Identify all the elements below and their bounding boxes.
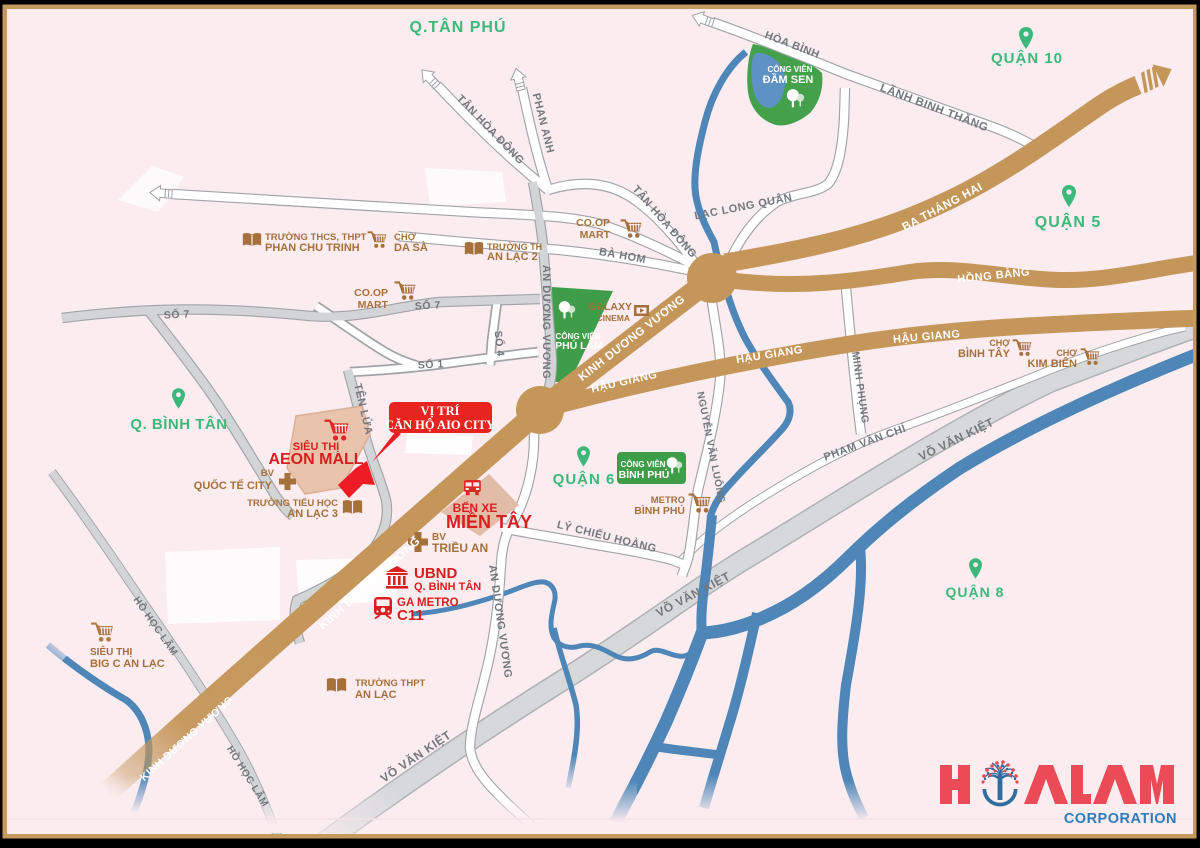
svg-text:TRIỀU AN: TRIỀU AN (432, 540, 488, 555)
svg-text:AN DƯƠNG VƯƠNG: AN DƯƠNG VƯƠNG (540, 265, 552, 379)
svg-text:CÔNG VIÊN: CÔNG VIÊN (621, 460, 666, 469)
svg-text:SỐ 7: SỐ 7 (163, 306, 190, 321)
svg-text:QUẬN 6: QUẬN 6 (553, 470, 616, 488)
svg-text:Q. BÌNH TÂN: Q. BÌNH TÂN (130, 415, 227, 433)
svg-text:CHỢ: CHỢ (1056, 348, 1077, 358)
svg-text:CORPORATION: CORPORATION (1064, 811, 1177, 827)
svg-text:GALAXY: GALAXY (588, 301, 632, 313)
svg-text:AEON MALL: AEON MALL (268, 451, 363, 468)
svg-text:CHỢ: CHỢ (989, 338, 1010, 348)
svg-text:QUỐC TẾ CITY: QUỐC TẾ CITY (194, 478, 273, 492)
svg-text:AN LẠC 2: AN LẠC 2 (487, 251, 538, 263)
svg-text:PHAN CHU TRINH: PHAN CHU TRINH (265, 242, 360, 254)
svg-text:MIỀN TÂY: MIỀN TÂY (446, 511, 532, 532)
svg-text:MART: MART (580, 229, 611, 241)
svg-text:KIM BIÊN: KIM BIÊN (1028, 357, 1078, 370)
svg-text:UBND: UBND (414, 565, 457, 582)
svg-text:QUẬN 8: QUẬN 8 (946, 583, 1005, 600)
svg-text:CINEMA: CINEMA (596, 313, 630, 323)
svg-text:BÌNH PHÚ: BÌNH PHÚ (619, 468, 670, 481)
svg-text:ĐẦM SEN: ĐẦM SEN (763, 73, 814, 86)
svg-text:DA SÀ: DA SÀ (394, 241, 428, 254)
svg-text:VỊ TRÍ: VỊ TRÍ (420, 404, 459, 418)
svg-text:Q.TÂN PHÚ: Q.TÂN PHÚ (410, 17, 507, 36)
svg-text:MART: MART (358, 299, 389, 311)
svg-text:QUẬN 5: QUẬN 5 (1035, 212, 1101, 231)
svg-text:PHÚ LÂM: PHÚ LÂM (555, 339, 603, 352)
svg-text:CĂN HỘ AIO CITY: CĂN HỘ AIO CITY (385, 418, 495, 432)
svg-text:BIG C AN LẠC: BIG C AN LẠC (90, 658, 165, 670)
svg-text:AN LẠC 3: AN LẠC 3 (287, 508, 338, 520)
svg-text:AN LẠC: AN LẠC (355, 689, 397, 701)
svg-text:SỐ 1: SỐ 1 (417, 356, 444, 371)
svg-text:BÌNH TÂY: BÌNH TÂY (958, 347, 1011, 360)
svg-text:BV: BV (261, 468, 275, 479)
svg-text:SỐ 7: SỐ 7 (414, 297, 441, 312)
svg-text:Q. BÌNH TÂN: Q. BÌNH TÂN (414, 580, 481, 593)
svg-text:CÔNG VIÊN: CÔNG VIÊN (768, 65, 813, 74)
svg-text:QUẬN 10: QUẬN 10 (991, 49, 1063, 67)
svg-text:CO.OP: CO.OP (576, 217, 610, 229)
svg-text:CO.OP: CO.OP (354, 287, 388, 299)
svg-text:TRƯỜNG THPT: TRƯỜNG THPT (355, 677, 426, 689)
svg-text:BÌNH PHÚ: BÌNH PHÚ (634, 504, 685, 517)
svg-text:SIÊU THỊ: SIÊU THỊ (90, 645, 132, 658)
svg-text:C11: C11 (397, 607, 424, 624)
